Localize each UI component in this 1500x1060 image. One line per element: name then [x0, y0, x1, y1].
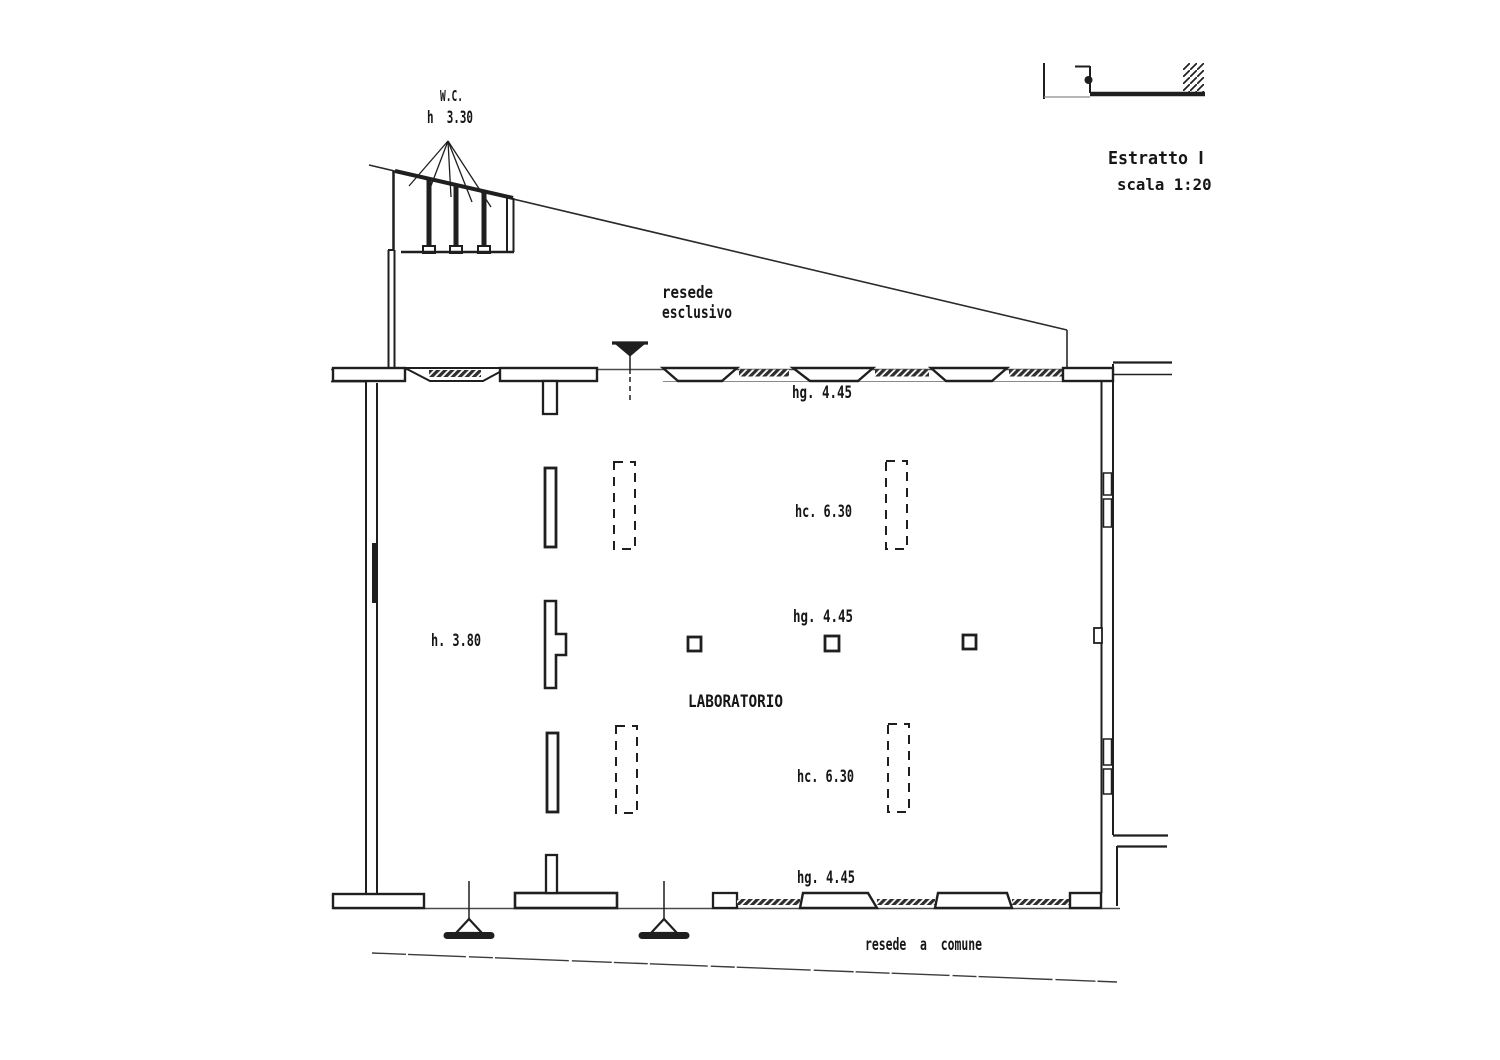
inset-node-dot	[1085, 76, 1093, 84]
bottom-wall	[333, 855, 1120, 909]
column	[825, 636, 839, 651]
window-band	[875, 370, 929, 377]
window-band	[429, 370, 481, 377]
hg-top-label: hg. 4.45	[792, 383, 852, 403]
h-left-label: h. 3.80	[431, 631, 481, 651]
wc-height-label: h 3.30	[427, 108, 473, 127]
estratto-inset-drawing	[1044, 63, 1205, 99]
hg-bottom-label: hg. 4.45	[797, 868, 855, 888]
window-band	[877, 899, 935, 905]
window-band	[737, 899, 800, 905]
window-side	[1104, 473, 1112, 495]
window-side	[1104, 499, 1112, 527]
resede-esclusivo-line1: resede	[662, 283, 713, 303]
room-label: LABORATORIO	[688, 692, 783, 712]
scala-label: scala 1:200	[1117, 175, 1221, 194]
window-band	[1012, 899, 1070, 905]
wall-notch	[1094, 628, 1102, 643]
column	[963, 635, 976, 649]
interior-structure	[545, 461, 976, 813]
left-wall	[366, 381, 377, 897]
window-side	[1104, 739, 1112, 765]
column	[688, 637, 701, 651]
floor-plan-canvas: W.C. h 3.30 Estratto scala 1:200 resede …	[0, 0, 1500, 1060]
entry-symbol-top	[612, 343, 648, 402]
estratto-label: Estratto	[1108, 148, 1188, 169]
wc-leader-lines	[409, 141, 491, 207]
window-band	[739, 370, 789, 377]
wall-stub-top	[543, 381, 557, 414]
right-wall	[1094, 364, 1168, 906]
site-boundary-lines	[369, 165, 1117, 982]
wc-label: W.C.	[440, 87, 463, 105]
hg-mid-label: hg. 4.45	[793, 607, 853, 627]
pier	[547, 733, 558, 812]
floor-plan-scan: W.C. h 3.30 Estratto scala 1:200 resede …	[0, 0, 1500, 1060]
resede-comune-label: resede a comune	[865, 935, 982, 954]
pier	[545, 468, 556, 547]
pier-with-notch	[545, 601, 566, 688]
wall-stub-bottom	[546, 855, 557, 893]
window-band	[1009, 370, 1063, 377]
resede-esclusivo-line2: esclusivo	[662, 303, 732, 323]
wc-block	[388, 141, 514, 371]
hatched-block	[1183, 63, 1204, 94]
hc-bottom-label: hc. 6.30	[797, 767, 854, 787]
top-wall	[331, 363, 1172, 415]
hc-top-label: hc. 6.30	[795, 502, 852, 522]
window-side	[1104, 769, 1112, 794]
dashed-beam-outlines	[614, 461, 909, 813]
